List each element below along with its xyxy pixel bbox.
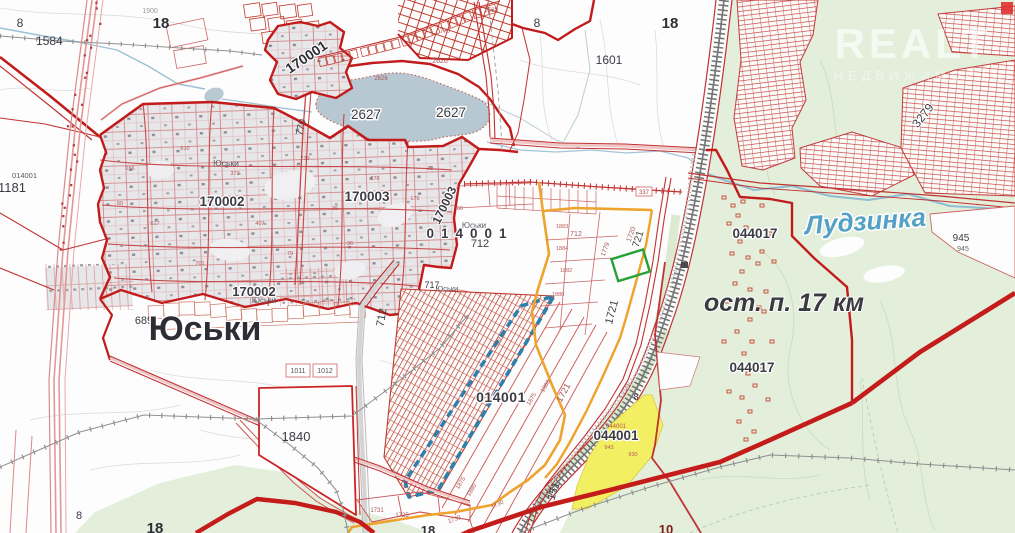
svg-text:170002: 170002 (199, 194, 244, 209)
svg-text:1601: 1601 (596, 53, 623, 67)
svg-text:943: 943 (604, 445, 613, 451)
svg-text:1840: 1840 (282, 429, 311, 444)
svg-text:1563: 1563 (484, 7, 499, 14)
svg-text:1900: 1900 (142, 8, 158, 15)
svg-text:8: 8 (76, 510, 82, 522)
svg-text:1883: 1883 (556, 224, 568, 230)
svg-text:044001: 044001 (593, 428, 639, 443)
svg-text:2626: 2626 (374, 76, 388, 82)
svg-text:610: 610 (180, 146, 189, 152)
svg-text:2627: 2627 (351, 107, 381, 122)
svg-text:044001: 044001 (606, 424, 627, 430)
svg-text:18: 18 (153, 15, 170, 32)
svg-text:REALT: REALT (835, 20, 992, 67)
svg-text:18: 18 (421, 523, 435, 533)
svg-text:8: 8 (17, 16, 24, 30)
svg-text:ост. п. 17 км: ост. п. 17 км (704, 289, 864, 317)
svg-text:2627: 2627 (436, 105, 466, 120)
svg-text:36: 36 (332, 206, 338, 212)
svg-text:372: 372 (230, 171, 239, 177)
svg-text:170003: 170003 (344, 189, 390, 204)
svg-text:930: 930 (628, 452, 637, 458)
svg-text:8: 8 (633, 392, 638, 402)
svg-text:701: 701 (195, 261, 204, 267)
svg-text:014001: 014001 (476, 389, 526, 405)
svg-text:1731: 1731 (370, 508, 384, 514)
svg-text:18: 18 (147, 520, 164, 533)
svg-text:66: 66 (457, 206, 463, 212)
svg-text:1584: 1584 (36, 34, 63, 48)
svg-text:1725: 1725 (395, 513, 409, 519)
svg-text:044017: 044017 (732, 226, 777, 241)
svg-text:96: 96 (347, 241, 353, 247)
svg-text:8: 8 (534, 16, 541, 30)
svg-text:2626: 2626 (432, 58, 448, 65)
svg-text:278: 278 (370, 176, 379, 182)
svg-text:1884: 1884 (556, 246, 568, 252)
svg-text:176: 176 (410, 196, 419, 202)
svg-text:617: 617 (150, 221, 159, 227)
svg-text:10: 10 (659, 522, 673, 533)
svg-text:945: 945 (953, 233, 970, 244)
svg-text:32: 32 (427, 166, 433, 172)
svg-text:1880: 1880 (552, 292, 564, 298)
svg-text:НЕДВИЖИМОСТЬ: НЕДВИЖИМОСТЬ (834, 68, 1007, 83)
svg-text:770: 770 (440, 29, 451, 35)
svg-text:1882: 1882 (560, 268, 572, 274)
svg-text:1011: 1011 (290, 368, 305, 375)
svg-text:717: 717 (424, 280, 439, 290)
svg-text:337: 337 (639, 190, 650, 196)
svg-text:Юськи: Юськи (149, 310, 262, 348)
svg-text:60: 60 (117, 201, 123, 207)
svg-text:014001: 014001 (426, 226, 513, 241)
svg-text:18: 18 (662, 15, 679, 32)
svg-text:044017: 044017 (729, 360, 774, 375)
svg-text:739: 739 (300, 156, 309, 162)
svg-text:1012: 1012 (317, 368, 333, 375)
svg-text:656: 656 (125, 166, 134, 172)
svg-text:945: 945 (957, 246, 969, 253)
svg-text:014001: 014001 (12, 171, 37, 180)
svg-text:712: 712 (570, 231, 582, 238)
svg-text:1181: 1181 (0, 180, 26, 195)
svg-text:79: 79 (287, 251, 293, 257)
svg-text:407: 407 (255, 221, 264, 227)
svg-text:Юськи: Юськи (213, 158, 239, 168)
svg-text:170002: 170002 (232, 284, 275, 299)
